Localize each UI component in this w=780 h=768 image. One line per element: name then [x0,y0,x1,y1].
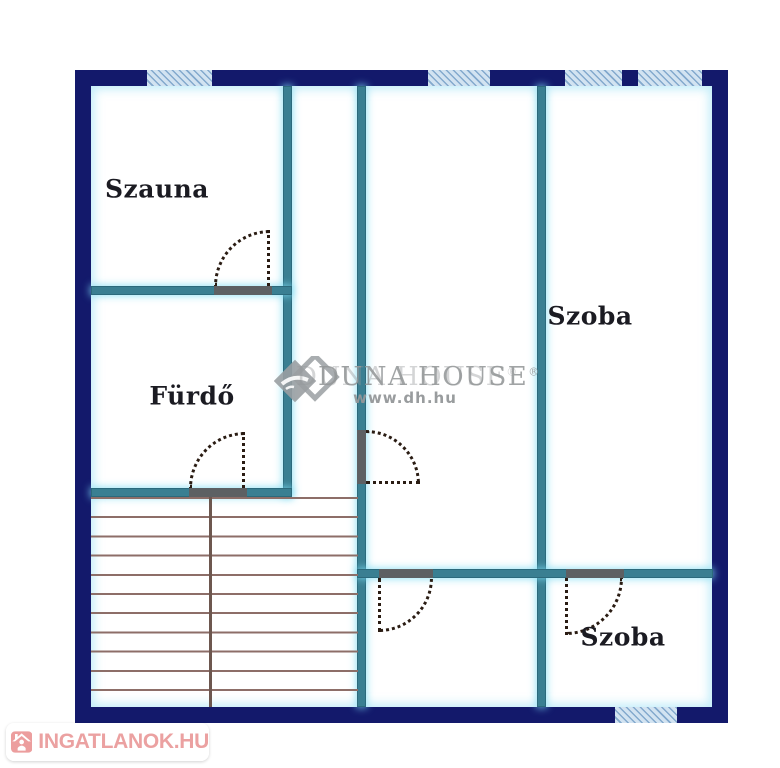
door-leaf-szauna [267,230,270,286]
window-top-1 [147,70,212,86]
door-opening-corridor [357,430,366,484]
door-opening-szoba-bottom [566,569,624,578]
stairs-divider [209,497,212,707]
door-leaf-corridor [366,481,420,484]
wall-vertical-szoba [537,86,546,707]
room-label-furdo: Fürdő [149,382,234,411]
door-leaf-furdo [242,432,245,488]
room-label-szoba-top: Szoba [547,302,632,331]
door-opening-szauna [214,286,272,295]
ingatlanok-logo-text: INGATLANOK.HU [38,730,209,754]
door-leaf-bottom-middle [378,578,381,632]
house-icon [11,726,32,758]
window-top-4 [638,70,702,86]
door-opening-furdo [189,488,247,497]
window-bottom-1 [615,707,677,723]
room-label-szauna: Szauna [105,175,209,204]
floorplan-canvas: Szauna Fürdő Szoba Szoba DUNA HOUSE® www… [0,0,780,768]
window-top-3 [565,70,622,86]
window-top-2 [428,70,490,86]
stairs [91,497,358,707]
door-opening-bottom-middle [379,569,433,578]
door-leaf-szoba-bottom [565,578,568,635]
wall-vertical-corridor [357,86,366,707]
room-label-szoba-bottom: Szoba [580,623,665,652]
ingatlanok-logo: INGATLANOK.HU [6,723,209,761]
